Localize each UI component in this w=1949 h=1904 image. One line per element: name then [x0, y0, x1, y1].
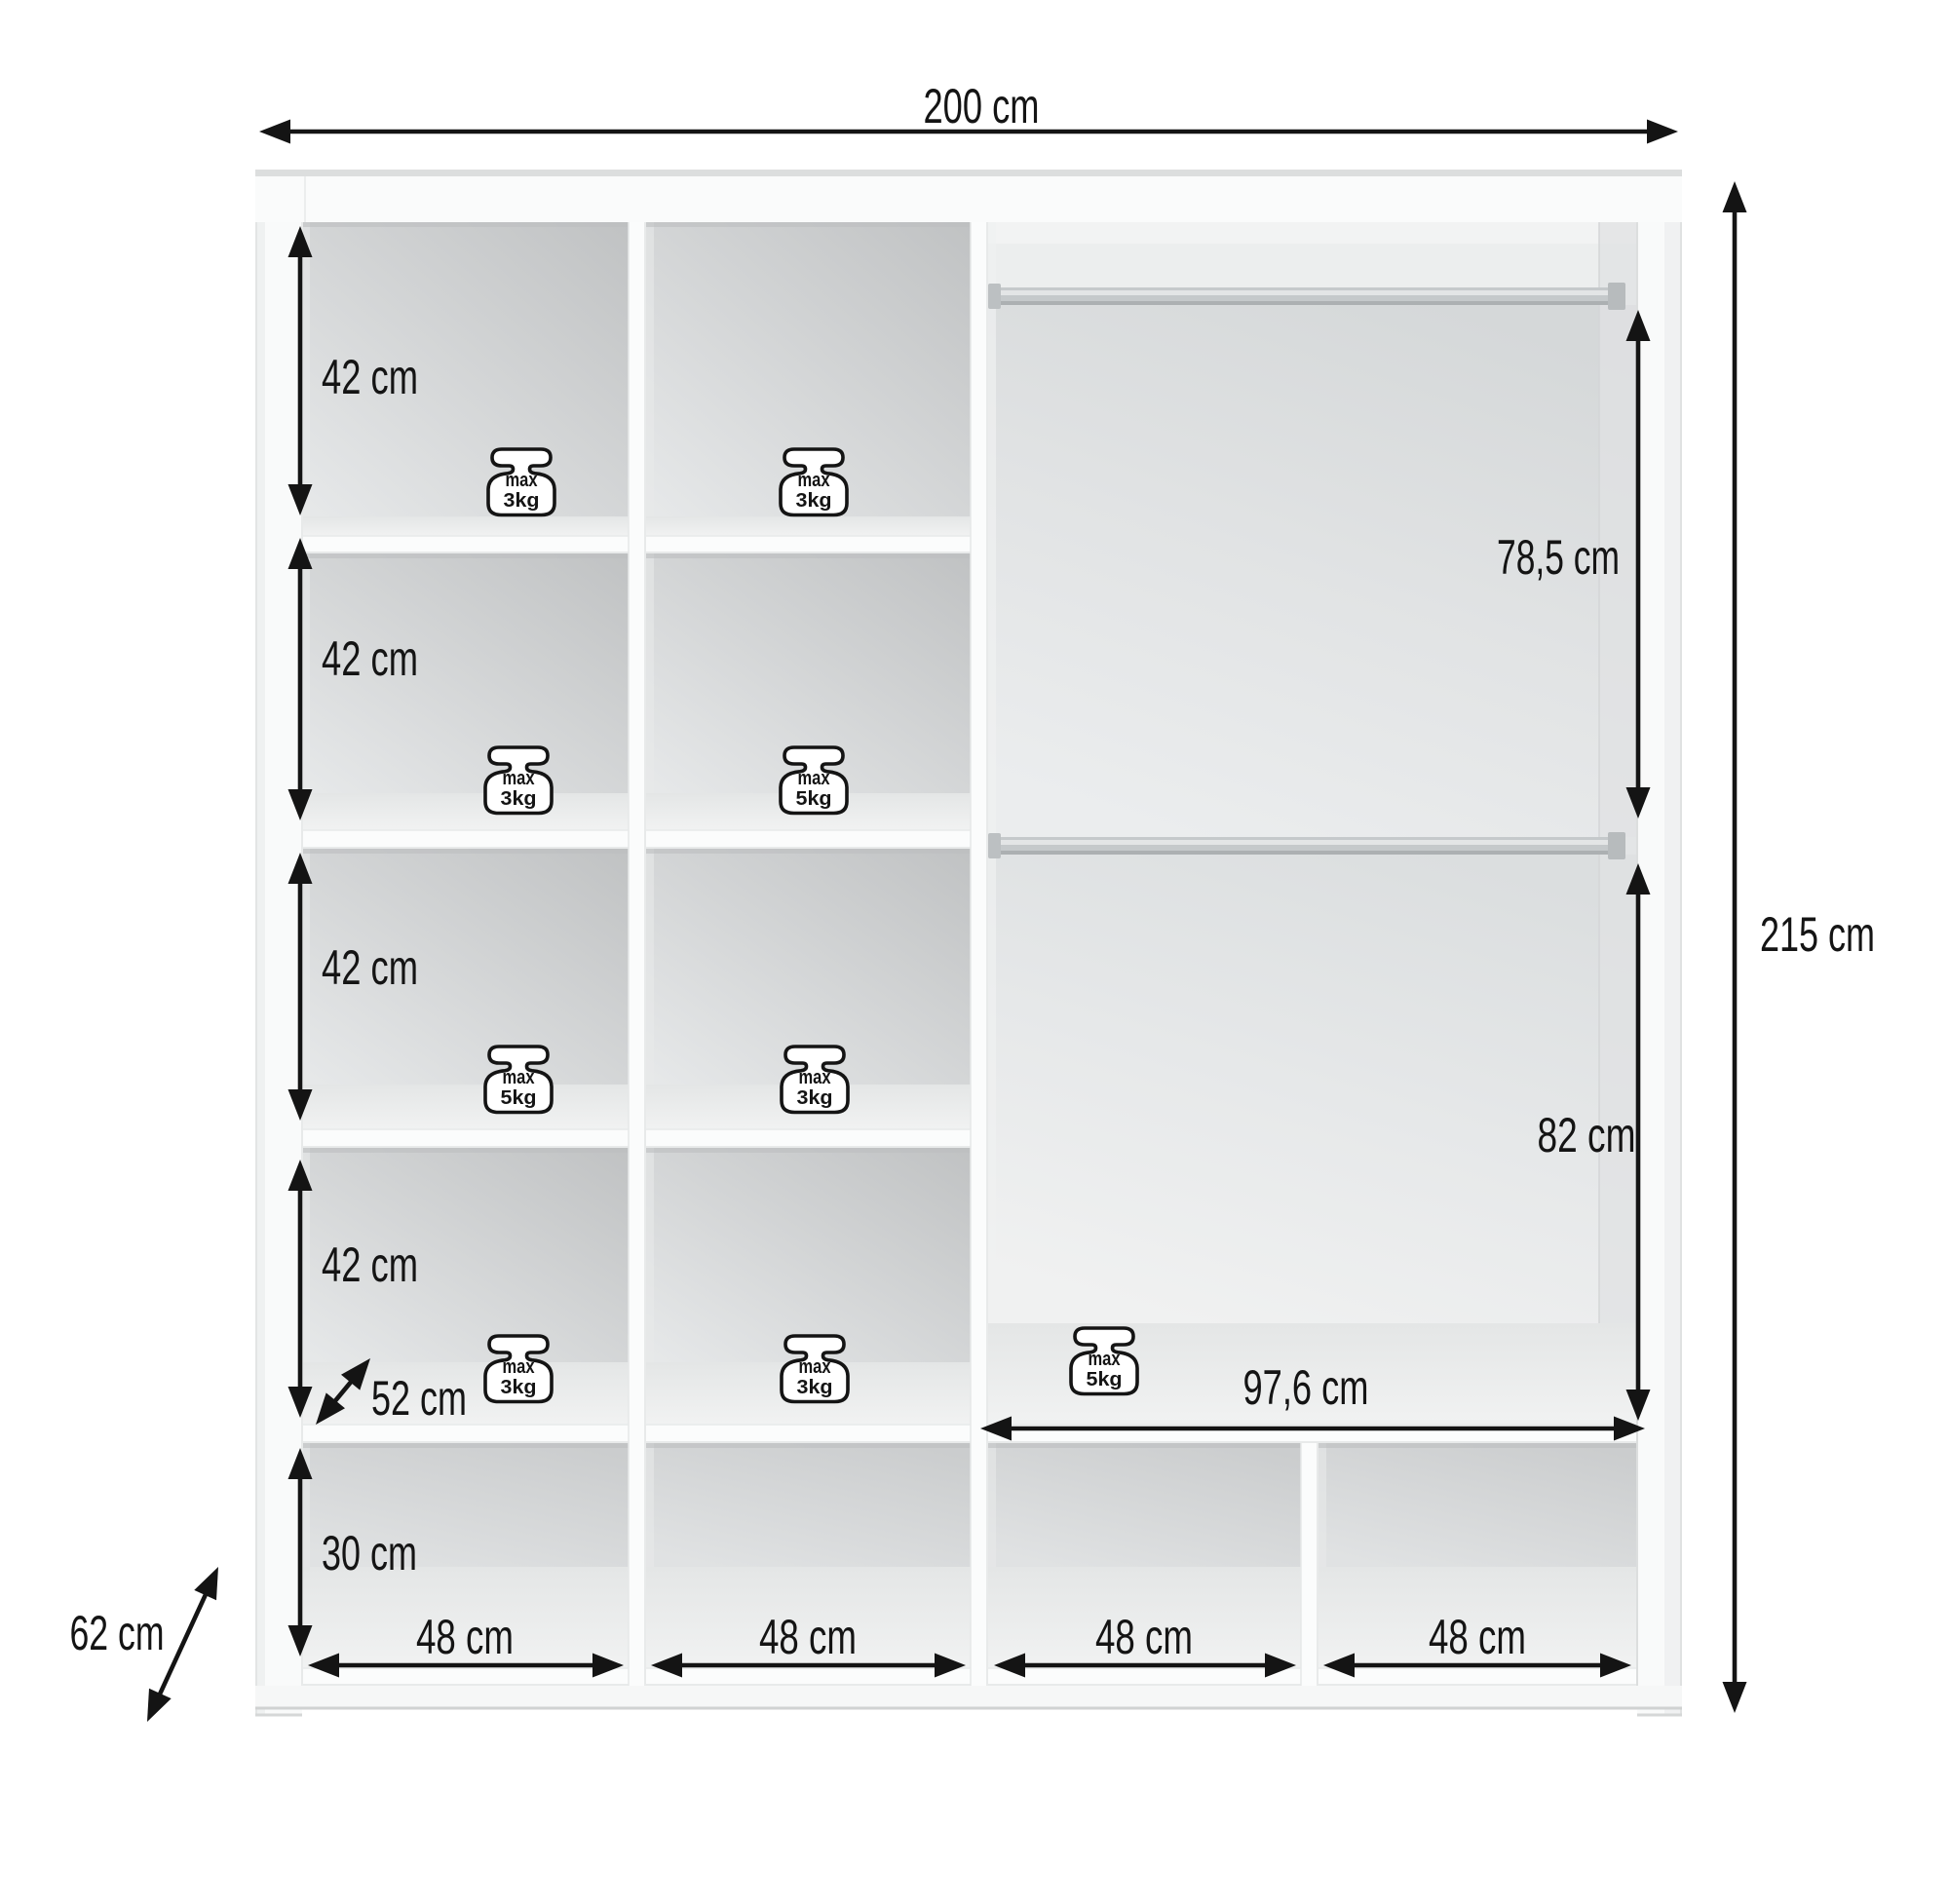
- svg-text:82 cm: 82 cm: [1538, 1108, 1636, 1162]
- svg-text:215 cm: 215 cm: [1760, 907, 1875, 962]
- svg-text:3kg: 3kg: [797, 1376, 833, 1398]
- svg-text:30 cm: 30 cm: [322, 1526, 417, 1580]
- svg-text:48 cm: 48 cm: [1429, 1610, 1526, 1664]
- svg-text:max: max: [503, 767, 535, 789]
- svg-text:48 cm: 48 cm: [759, 1610, 857, 1664]
- svg-text:max: max: [503, 1066, 535, 1088]
- svg-text:5kg: 5kg: [796, 787, 832, 810]
- svg-text:200 cm: 200 cm: [924, 79, 1040, 133]
- svg-text:52 cm: 52 cm: [371, 1371, 467, 1426]
- svg-text:max: max: [798, 767, 830, 789]
- svg-text:42 cm: 42 cm: [322, 631, 418, 686]
- svg-text:42 cm: 42 cm: [322, 1238, 418, 1292]
- svg-text:5kg: 5kg: [1087, 1368, 1123, 1390]
- svg-text:42 cm: 42 cm: [322, 350, 418, 404]
- svg-text:max: max: [1089, 1348, 1121, 1370]
- svg-text:78,5 cm: 78,5 cm: [1497, 530, 1620, 585]
- svg-text:max: max: [799, 1066, 831, 1088]
- svg-text:max: max: [503, 1355, 535, 1378]
- svg-text:97,6 cm: 97,6 cm: [1243, 1360, 1369, 1415]
- svg-text:max: max: [799, 1355, 831, 1378]
- svg-text:3kg: 3kg: [501, 787, 537, 810]
- svg-text:48 cm: 48 cm: [1095, 1610, 1193, 1664]
- svg-text:3kg: 3kg: [504, 489, 540, 512]
- svg-text:max: max: [798, 469, 830, 491]
- svg-text:62 cm: 62 cm: [70, 1606, 165, 1660]
- svg-text:3kg: 3kg: [797, 1086, 833, 1109]
- svg-text:max: max: [506, 469, 538, 491]
- svg-text:42 cm: 42 cm: [322, 940, 418, 995]
- svg-text:3kg: 3kg: [796, 489, 832, 512]
- svg-text:3kg: 3kg: [501, 1376, 537, 1398]
- svg-text:48 cm: 48 cm: [416, 1610, 514, 1664]
- svg-text:5kg: 5kg: [501, 1086, 537, 1109]
